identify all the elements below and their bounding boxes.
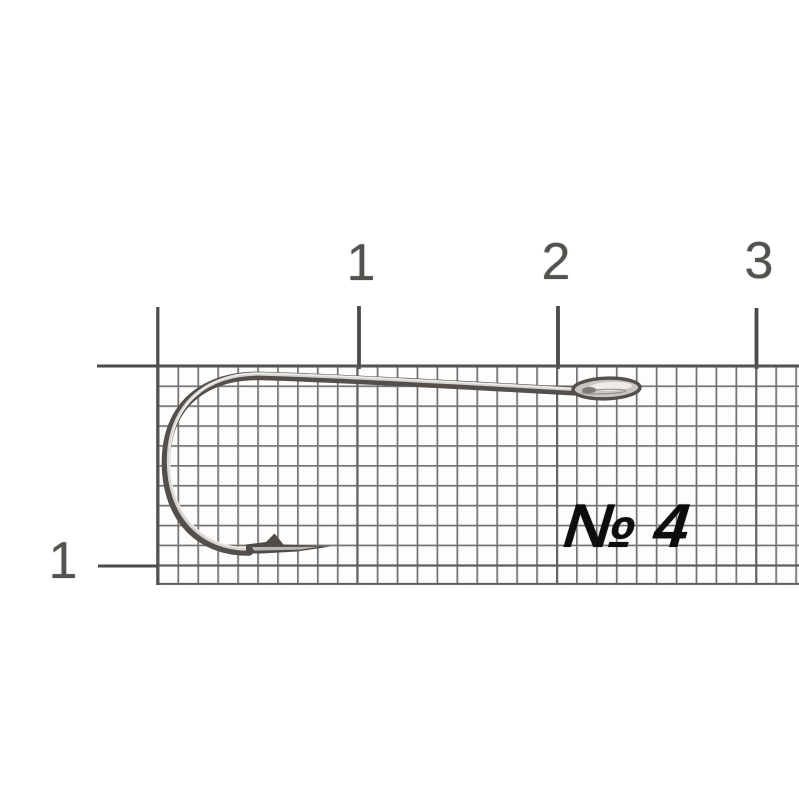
ruler-label-top-3: 3: [745, 235, 774, 287]
hook-eye: [573, 377, 641, 400]
hook-size-label: № 4: [561, 496, 693, 558]
graph-paper-and-hook-graphic: [0, 0, 799, 800]
ruler-label-top-2: 2: [542, 236, 571, 288]
ruler-label-top-1: 1: [347, 237, 376, 289]
ruler-ticks: [359, 306, 757, 369]
ruler-label-left-1: 1: [49, 535, 78, 587]
product-photo: 1 2 3 1 № 4: [0, 0, 799, 800]
